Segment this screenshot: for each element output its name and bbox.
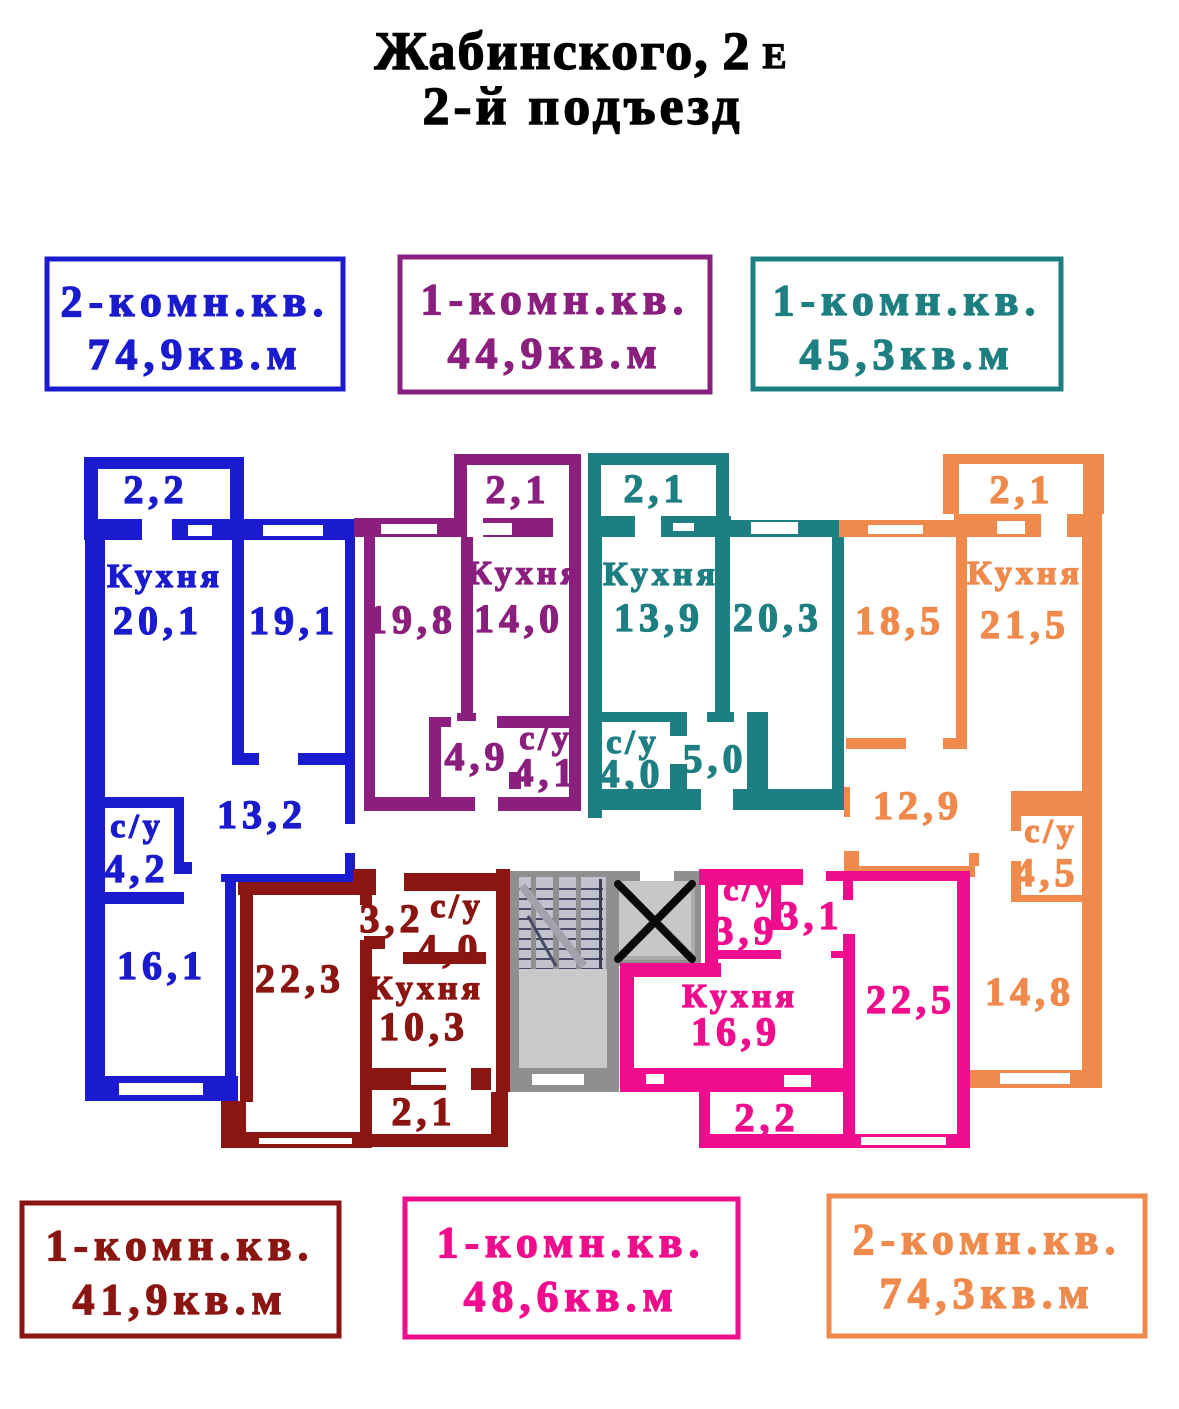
svg-text:Кухня: Кухня — [967, 555, 1083, 592]
svg-text:19,8: 19,8 — [367, 597, 457, 642]
svg-text:3,9: 3,9 — [714, 908, 779, 953]
svg-text:48,6кв.м: 48,6кв.м — [463, 1272, 678, 1321]
svg-text:20,3: 20,3 — [733, 595, 823, 640]
svg-text:3,2: 3,2 — [360, 896, 425, 941]
svg-text:1-комн.кв.: 1-комн.кв. — [772, 276, 1041, 325]
svg-text:4,0: 4,0 — [418, 926, 483, 971]
svg-text:2-й подъезд: 2-й подъезд — [423, 76, 744, 136]
svg-text:2,1: 2,1 — [392, 1089, 457, 1134]
svg-text:18,5: 18,5 — [855, 598, 945, 643]
svg-text:14,0: 14,0 — [474, 596, 564, 641]
svg-text:74,9кв.м: 74,9кв.м — [87, 330, 302, 379]
svg-text:с/у: с/у — [723, 871, 777, 908]
svg-text:22,5: 22,5 — [866, 977, 956, 1022]
svg-text:Жабинского, 2: Жабинского, 2 — [374, 21, 751, 81]
svg-text:45,3кв.м: 45,3кв.м — [799, 330, 1014, 379]
svg-text:2,1: 2,1 — [990, 467, 1055, 512]
svg-text:2,1: 2,1 — [486, 467, 551, 512]
svg-text:3,1: 3,1 — [779, 893, 844, 938]
svg-text:Кухня: Кухня — [368, 970, 484, 1007]
svg-text:20,1: 20,1 — [113, 598, 203, 643]
svg-text:13,2: 13,2 — [217, 792, 307, 837]
svg-text:1-комн.кв.: 1-комн.кв. — [45, 1221, 314, 1270]
svg-text:5,0: 5,0 — [683, 736, 748, 781]
svg-text:Е: Е — [762, 36, 791, 76]
svg-text:1-комн.кв.: 1-комн.кв. — [436, 1218, 705, 1267]
svg-text:10,3: 10,3 — [379, 1004, 469, 1049]
svg-text:16,1: 16,1 — [117, 943, 207, 988]
svg-text:74,3кв.м: 74,3кв.м — [879, 1269, 1094, 1318]
svg-text:4,9: 4,9 — [445, 734, 510, 779]
svg-text:1-комн.кв.: 1-комн.кв. — [420, 275, 689, 324]
svg-text:22,3: 22,3 — [255, 956, 345, 1001]
svg-text:16,9: 16,9 — [691, 1009, 781, 1054]
svg-text:2,1: 2,1 — [624, 466, 689, 511]
svg-text:Кухня: Кухня — [467, 555, 583, 592]
svg-text:19,1: 19,1 — [249, 598, 339, 643]
svg-text:21,5: 21,5 — [980, 602, 1070, 647]
svg-text:12,9: 12,9 — [873, 783, 963, 828]
svg-text:с/у: с/у — [110, 808, 164, 845]
svg-text:4,2: 4,2 — [105, 846, 170, 891]
svg-text:2-комн.кв.: 2-комн.кв. — [60, 277, 329, 326]
svg-text:Кухня: Кухня — [603, 556, 719, 593]
svg-text:Кухня: Кухня — [107, 558, 223, 595]
svg-text:41,9кв.м: 41,9кв.м — [72, 1275, 287, 1324]
svg-text:44,9кв.м: 44,9кв.м — [447, 329, 662, 378]
svg-text:13,9: 13,9 — [614, 595, 704, 640]
svg-text:4,5: 4,5 — [1015, 850, 1080, 895]
svg-text:2,2: 2,2 — [124, 467, 189, 512]
svg-text:4,0: 4,0 — [600, 751, 665, 796]
svg-text:с/у: с/у — [430, 888, 484, 925]
svg-text:2-комн.кв.: 2-комн.кв. — [852, 1215, 1121, 1264]
svg-text:с/у: с/у — [1024, 813, 1078, 850]
svg-text:14,8: 14,8 — [985, 969, 1075, 1014]
svg-text:2,2: 2,2 — [735, 1095, 800, 1140]
svg-text:4,1: 4,1 — [514, 750, 579, 795]
